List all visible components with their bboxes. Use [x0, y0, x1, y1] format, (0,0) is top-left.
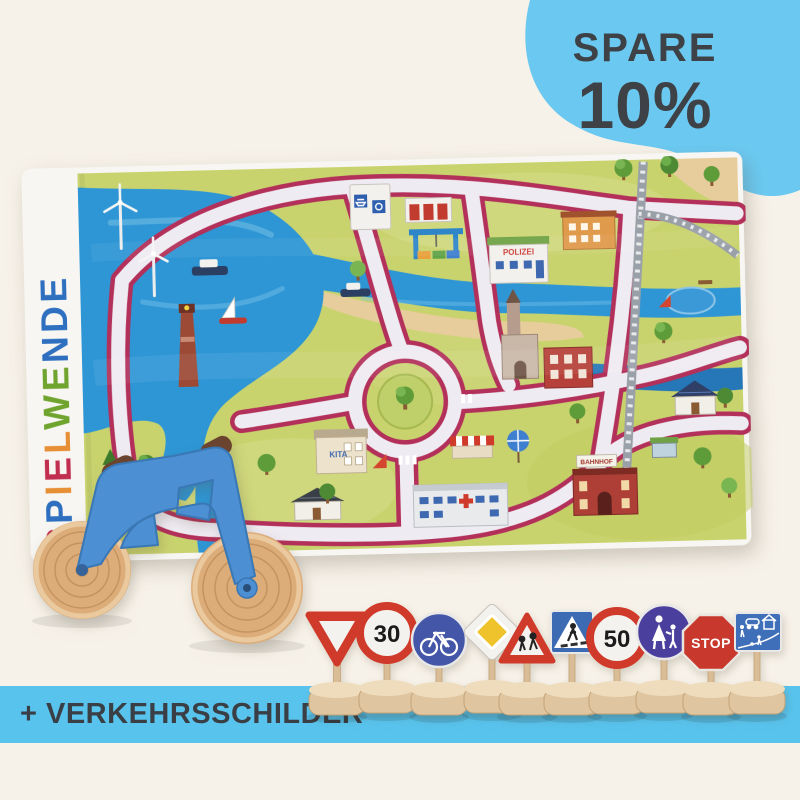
badge-spare-text: SPARE — [540, 26, 750, 70]
hospital-building — [413, 483, 508, 527]
roundabout — [377, 374, 432, 429]
brand-letter: E — [35, 363, 77, 392]
traffic-sign-speed-30: 30 — [357, 606, 417, 721]
speed-50-label: 50 — [604, 626, 631, 653]
toy-balance-bike — [25, 418, 325, 653]
ferry-terminal — [350, 184, 391, 230]
brand-letter: N — [34, 332, 76, 363]
traffic-sign-play-street — [727, 613, 787, 722]
fire-station — [405, 197, 452, 222]
traffic-signs-set: 30 — [295, 585, 795, 755]
promo-badge: SPARE 10% — [540, 26, 750, 138]
speed-30-label: 30 — [374, 621, 401, 648]
brand-letter: E — [33, 274, 75, 303]
brand-letter: D — [34, 302, 76, 333]
traffic-sign-bicycle-path — [409, 613, 469, 723]
badge-percent-text: 10% — [540, 72, 750, 138]
bahnhof-label: BAHNHOF — [580, 459, 613, 467]
product-image: SPARE 10% — [0, 0, 800, 800]
stop-label: STOP — [691, 635, 731, 651]
